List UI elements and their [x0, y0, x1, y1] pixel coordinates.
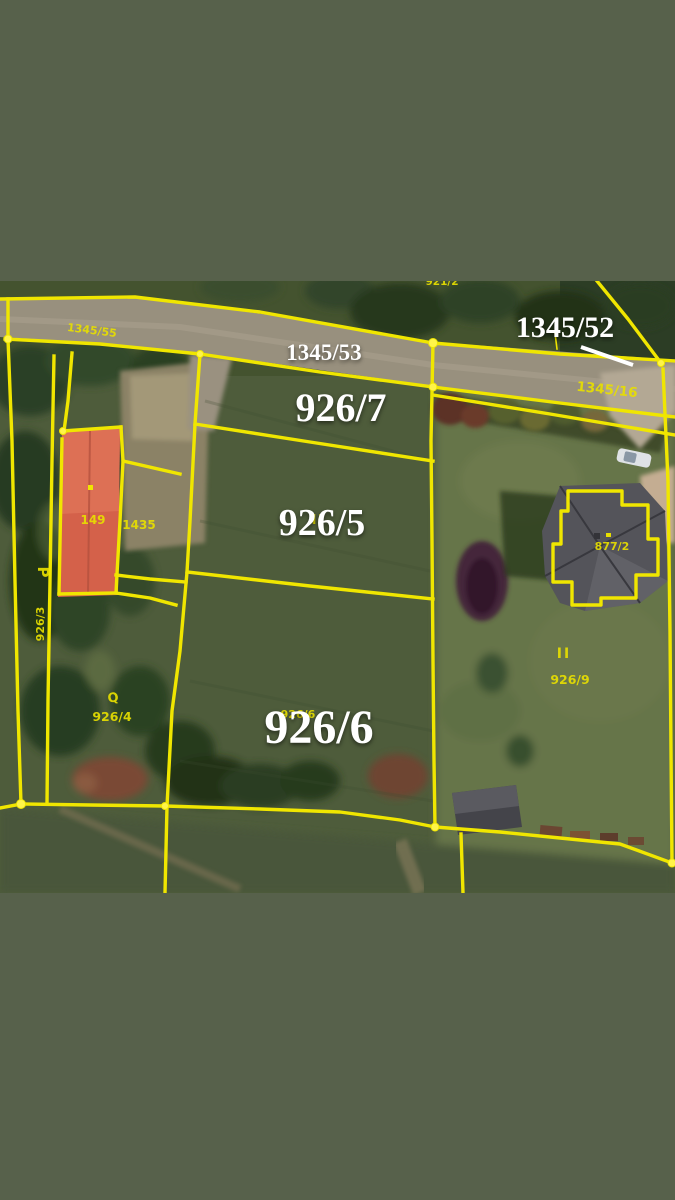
aerial-map: 1345/55 1345/16 921/2 149 1435 926/4 926… [0, 281, 675, 893]
barn-red-roof [58, 427, 120, 597]
boundary-short-vertical [461, 834, 463, 893]
label-building-149: 149 [80, 513, 105, 527]
boundary-barn-bottom [59, 593, 116, 594]
label-plot-926-6: 926/6 [264, 701, 373, 754]
screenshot-frame: 1345/55 1345/16 921/2 149 1435 926/4 926… [0, 0, 675, 1200]
label-house-877-2: 877/2 [595, 540, 630, 553]
label-plot-926-5: 926/5 [279, 502, 366, 544]
letterbox-top [0, 0, 675, 281]
symbol-ii: II [557, 646, 571, 662]
house-dot [606, 533, 611, 537]
label-plot-926-3: 926/3 [34, 607, 47, 642]
letterbox-bottom [0, 893, 675, 1200]
label-plot-926-9: 926/9 [550, 672, 589, 687]
barn-roof-dot [88, 485, 93, 490]
label-plot-926-7: 926/7 [295, 385, 386, 430]
label-yard-1435: 1435 [122, 518, 155, 532]
label-plot-1345-53: 1345/53 [286, 340, 361, 365]
label-top-partial: 921/2 [425, 281, 458, 288]
symbol-p: P [34, 567, 52, 578]
label-plot-1345-52: 1345/52 [516, 311, 614, 344]
label-plot-926-4: 926/4 [92, 709, 132, 724]
